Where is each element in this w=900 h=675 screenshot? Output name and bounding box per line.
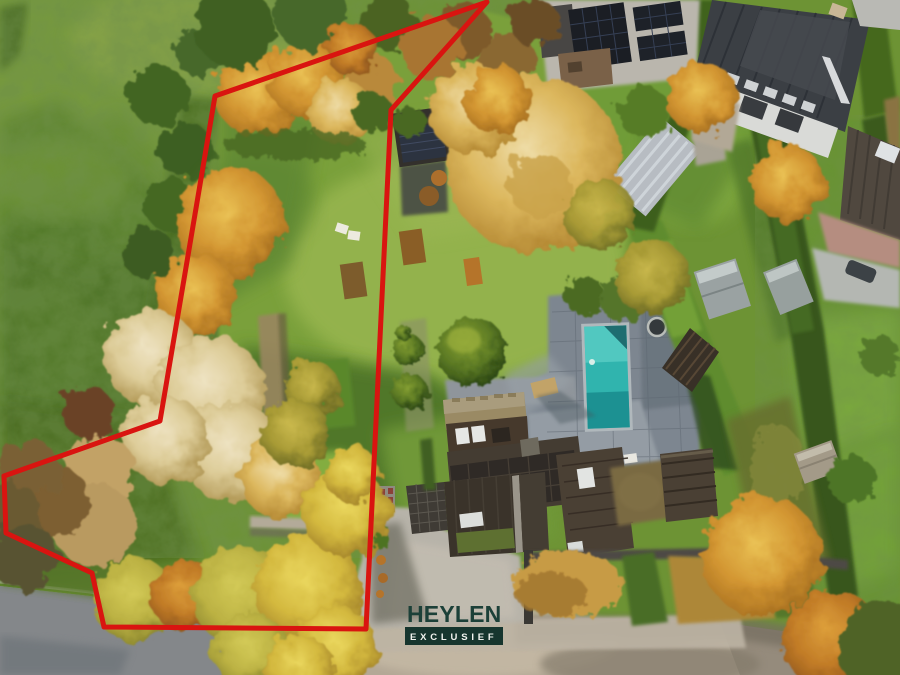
svg-text:EXCLUSIEF: EXCLUSIEF: [410, 632, 498, 643]
svg-text:HEYLEN: HEYLEN: [407, 601, 502, 627]
